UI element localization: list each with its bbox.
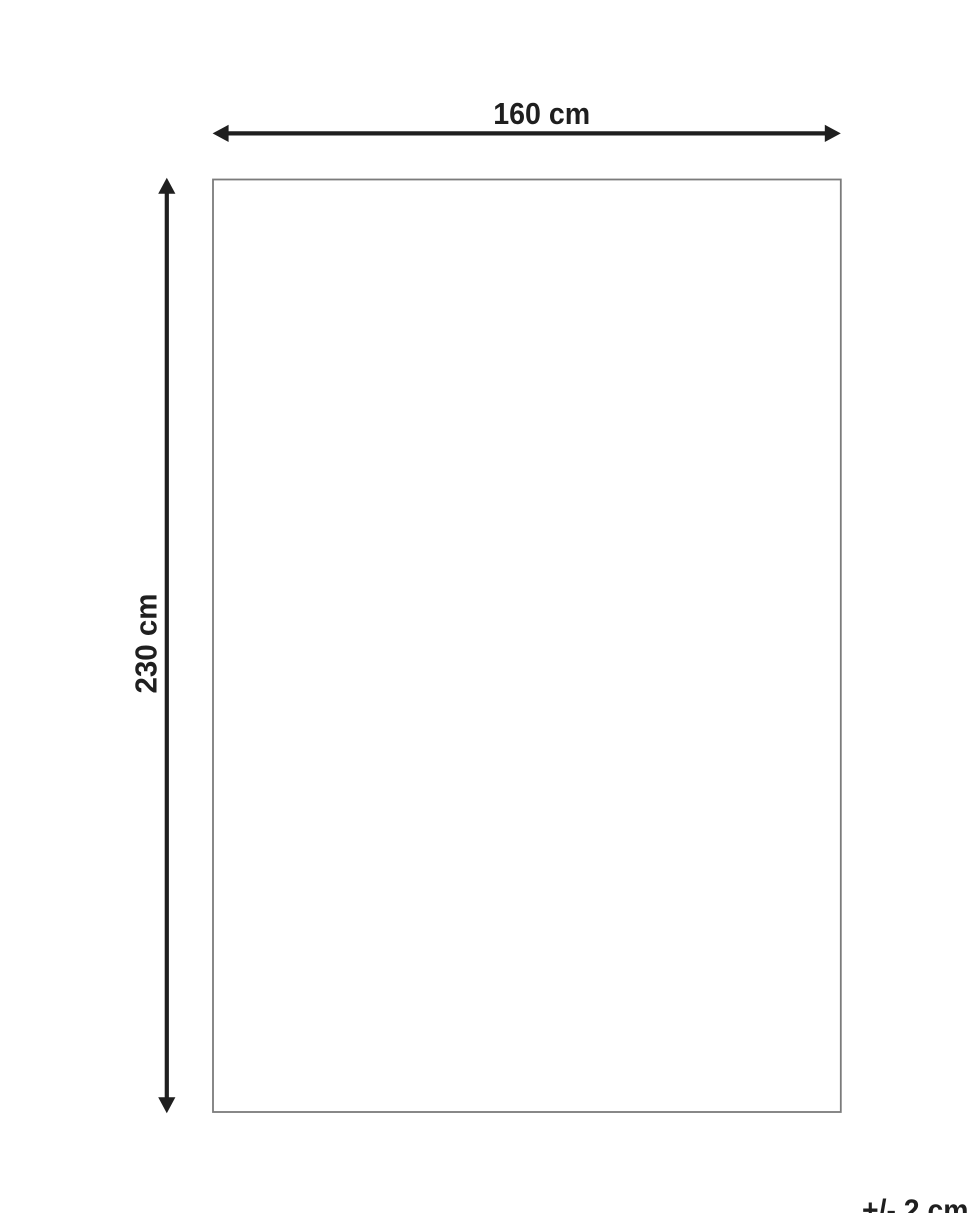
svg-text:160 cm: 160 cm — [493, 97, 590, 131]
svg-text:+/- 2 cm: +/- 2 cm — [862, 1194, 969, 1213]
svg-text:230 cm: 230 cm — [130, 594, 164, 694]
